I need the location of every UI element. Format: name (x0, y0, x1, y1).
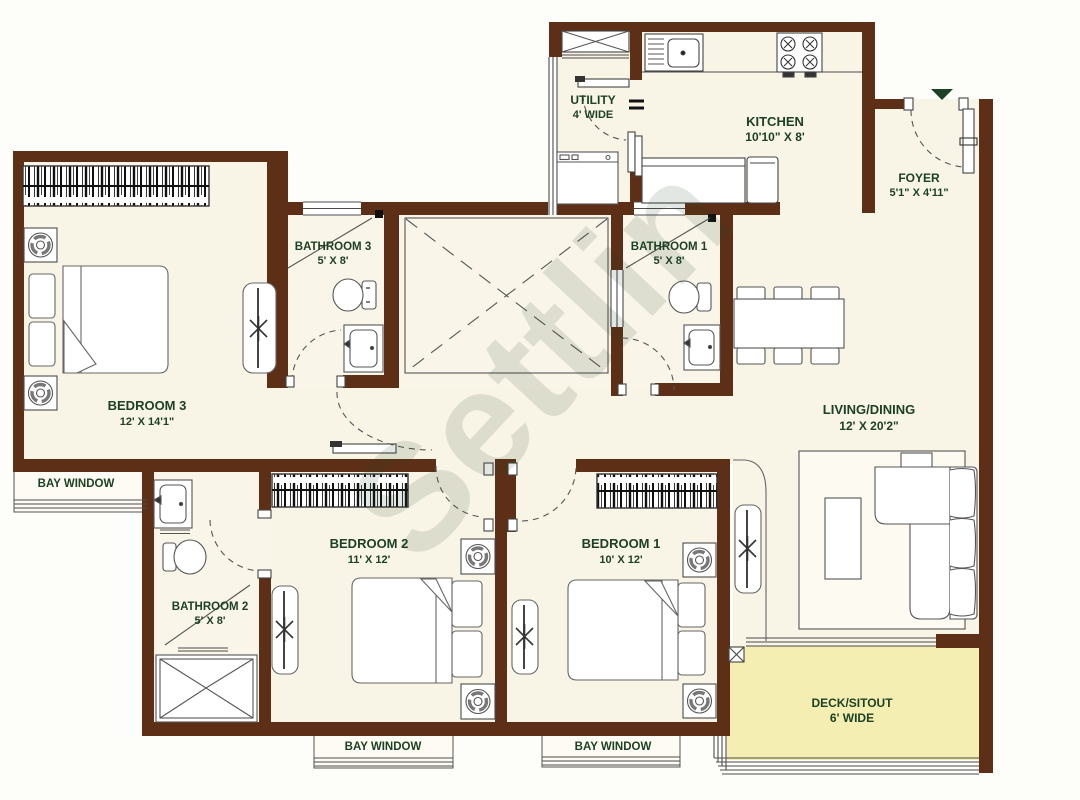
svg-text:BATHROOM 3: BATHROOM 3 (295, 241, 371, 253)
svg-text:LIVING/DINING: LIVING/DINING (823, 402, 915, 417)
svg-text:KITCHEN: KITCHEN (746, 114, 804, 129)
svg-text:12' X 14'1": 12' X 14'1" (120, 416, 174, 428)
svg-text:4' WIDE: 4' WIDE (573, 109, 614, 121)
svg-text:10' X 12': 10' X 12' (599, 554, 643, 566)
svg-text:DECK/SITOUT: DECK/SITOUT (811, 696, 893, 710)
svg-text:11' X 12': 11' X 12' (348, 554, 391, 566)
svg-text:BATHROOM 2: BATHROOM 2 (172, 601, 248, 613)
svg-text:12' X 20'2": 12' X 20'2" (839, 419, 898, 433)
svg-text:BAY WINDOW: BAY WINDOW (345, 741, 422, 753)
svg-text:FOYER: FOYER (898, 171, 940, 185)
svg-text:10'10" X 8': 10'10" X 8' (745, 130, 805, 144)
svg-text:BAY WINDOW: BAY WINDOW (38, 478, 115, 490)
svg-text:BAY WINDOW: BAY WINDOW (575, 741, 652, 753)
svg-text:5' X 8': 5' X 8' (195, 615, 226, 627)
svg-text:BEDROOM 1: BEDROOM 1 (582, 536, 661, 551)
svg-text:5'1" X 4'11": 5'1" X 4'11" (889, 187, 948, 199)
svg-text:6' WIDE: 6' WIDE (830, 711, 874, 725)
svg-text:BEDROOM 3: BEDROOM 3 (108, 398, 187, 413)
svg-text:5' X 8': 5' X 8' (318, 255, 349, 267)
svg-text:UTILITY: UTILITY (570, 93, 615, 107)
